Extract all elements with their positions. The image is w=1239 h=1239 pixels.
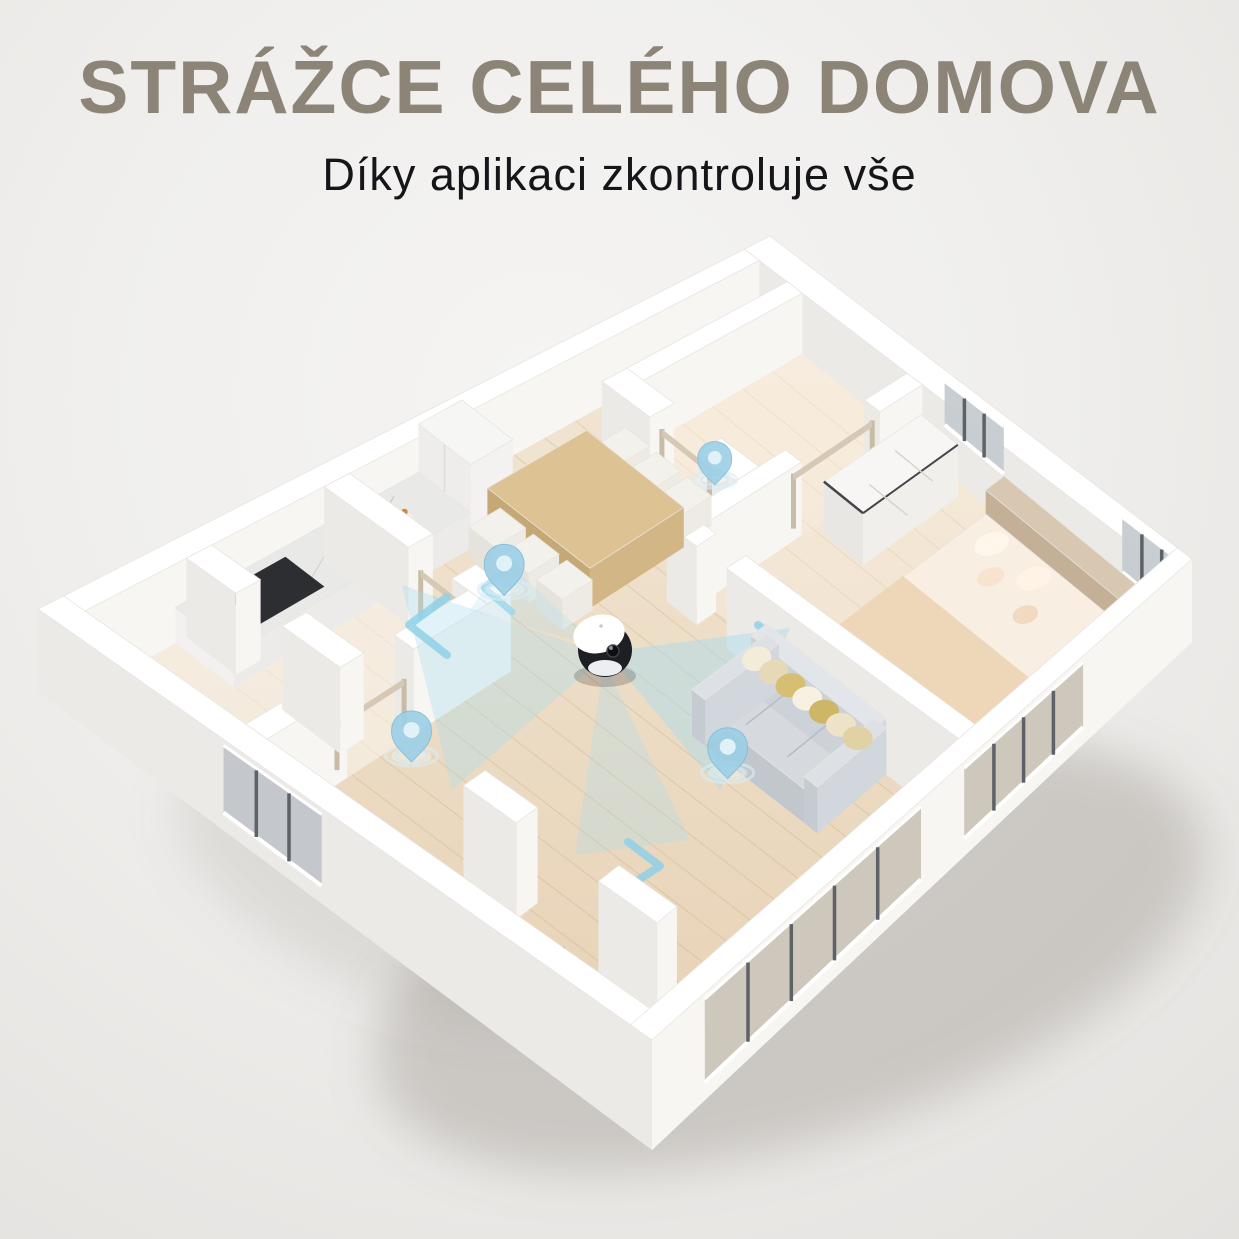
page-subtitle: Díky aplikaci zkontroluje vše [0,149,1239,201]
page-title: STRÁŽCE CELÉHO DOMOVA [0,48,1239,127]
promo-page: STRÁŽCE CELÉHO DOMOVA Díky aplikaci zkon… [0,0,1239,1239]
header: STRÁŽCE CELÉHO DOMOVA Díky aplikaci zkon… [0,48,1239,201]
